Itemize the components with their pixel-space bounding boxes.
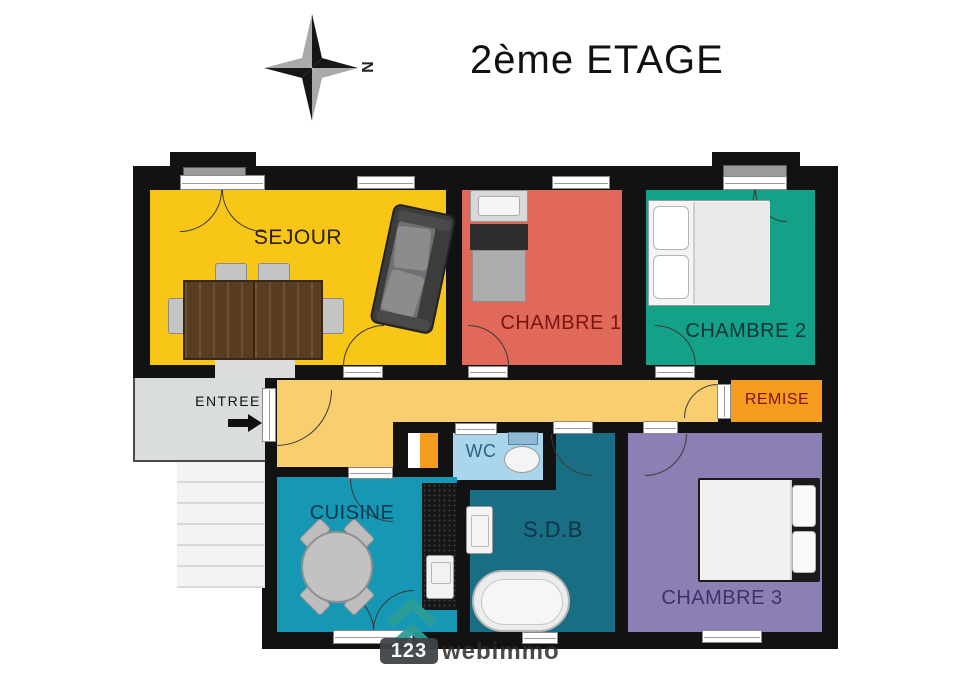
french-door-sejour-top: [180, 175, 265, 190]
pillow: [653, 255, 689, 299]
stair-step: [177, 462, 265, 483]
bed-single: [470, 190, 528, 302]
stair-step: [177, 546, 265, 567]
stair-step: [177, 483, 265, 504]
entree-arrow-icon: [228, 414, 264, 432]
door-threshold-remise: [717, 384, 731, 419]
stair-step: [177, 504, 265, 525]
window-chambre3-bottom: [702, 630, 762, 643]
door-threshold-sejour: [343, 366, 383, 378]
sofa-cushion: [393, 226, 431, 271]
compass-north-label: N: [357, 61, 375, 73]
stair-step: [177, 525, 265, 546]
pillow: [792, 531, 816, 573]
hall-closet: [420, 433, 438, 468]
label-remise: REMISE: [745, 391, 809, 409]
label-entree: ENTREE: [195, 393, 261, 409]
washbasin: [466, 506, 493, 554]
dining-chair: [320, 298, 344, 334]
closet-door-strip: [408, 433, 420, 468]
label-wc: WC: [466, 441, 497, 462]
door-threshold-entree: [262, 388, 276, 442]
wall-chimney-left: [170, 152, 256, 168]
french-door-chambre2-top: [723, 176, 787, 190]
pillow: [792, 485, 816, 527]
label-sejour: SEJOUR: [254, 226, 342, 250]
watermark-name: webimmo: [442, 638, 560, 666]
toilet-bowl: [504, 446, 540, 473]
door-threshold-chambre1: [468, 366, 508, 378]
watermark-number: 123: [380, 638, 438, 664]
bed-double-chambre2: [648, 200, 770, 306]
label-cuisine: CUISINE: [310, 502, 395, 525]
door-threshold-wc: [455, 423, 497, 435]
kitchen-sink: [426, 555, 454, 599]
pillow: [653, 206, 689, 250]
floor-plan-page: 2ème ETAGE N: [0, 0, 960, 679]
door-threshold-sdb: [553, 421, 593, 434]
label-chambre3: CHAMBRE 3: [661, 587, 782, 610]
page-title: 2ème ETAGE: [470, 38, 724, 83]
window-sejour-top: [357, 176, 415, 189]
door-threshold-chambre3: [643, 421, 678, 434]
door-threshold-chambre2: [655, 366, 695, 378]
stairs: [177, 462, 265, 579]
door-threshold-cuisine: [348, 467, 393, 479]
window-chambre1-top: [552, 176, 610, 189]
label-chambre2: CHAMBRE 2: [685, 320, 806, 343]
stair-step: [177, 567, 265, 588]
label-chambre1: CHAMBRE 1: [500, 312, 621, 335]
toilet-tank: [508, 432, 538, 445]
compass-icon: [255, 8, 365, 126]
dining-set: [165, 258, 343, 380]
kitchen-table: [301, 531, 373, 603]
watermark-logo: 123 webimmo: [348, 596, 578, 666]
dining-table: [183, 280, 323, 360]
label-sdb: S.D.B: [523, 517, 583, 543]
bed-double-chambre3: [698, 478, 820, 582]
pillow: [478, 196, 520, 216]
